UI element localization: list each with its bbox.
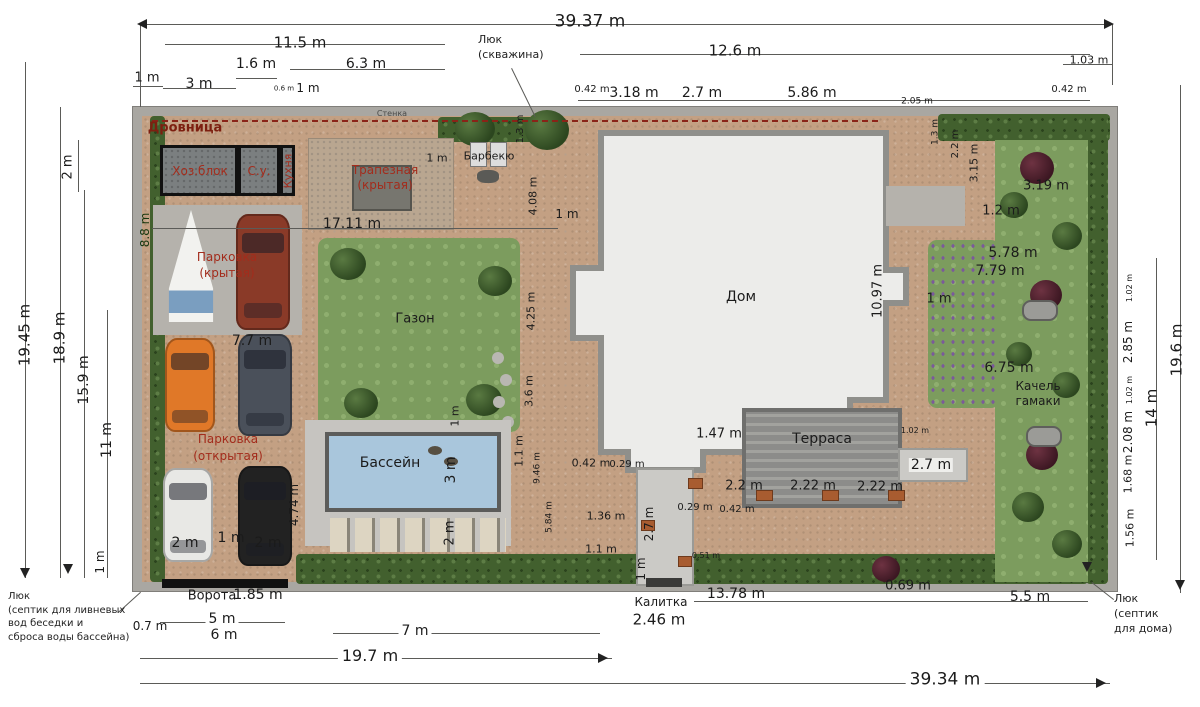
dim-1m-path: 1 m (635, 557, 647, 580)
tree (525, 110, 569, 150)
dim-6-75: 6.75 m (984, 361, 1033, 375)
pool (325, 432, 501, 512)
dim-2-46: 2.46 m (633, 613, 686, 628)
dim-2m-park-b: 2 m (255, 536, 282, 550)
car-gray (238, 334, 292, 436)
hedge-top-right (938, 114, 1110, 141)
note-manhole-well: Люк (скважина) (478, 33, 544, 63)
dim-5m: 5 m (206, 612, 239, 626)
dim-1m-dining: 1 m (426, 153, 447, 164)
dim-2-22-a: 2.22 m (790, 480, 836, 493)
dim-5-86: 5.86 m (787, 86, 836, 100)
path-top-right (886, 186, 965, 226)
area-label-house: Дом (726, 290, 756, 304)
area-label-gate-wicket: Калитка (635, 596, 688, 608)
arrowhead (1104, 19, 1119, 29)
dim-1-36: 1.36 m (587, 511, 626, 522)
dim-4-74: 4.74 m (288, 484, 300, 526)
dim-1m-park: 1 m (218, 531, 245, 545)
dim-12-6: 12.6 m (709, 44, 762, 59)
dim-1-02-a: 1.02 m (1126, 274, 1134, 302)
arrowhead (1096, 678, 1111, 688)
dim-line (140, 24, 141, 107)
bush (1052, 222, 1082, 250)
dim-1-02-b: 1.02 m (1126, 376, 1134, 404)
dim-1-1-path: 1.1 m (585, 544, 617, 555)
dim-7m: 7 m (399, 624, 432, 638)
area-label-covered-parking-2: (крытая) (199, 267, 254, 279)
step (688, 478, 703, 489)
car-orange (165, 338, 215, 432)
dim-0-29-b: 0.29 m (677, 503, 712, 513)
stepping-stone (493, 396, 505, 408)
dim-line (140, 24, 1112, 25)
dim-11-5: 11.5 m (274, 36, 327, 51)
site-plan: Дровница Хоз.блок С.у. Кухня Трапезная (… (0, 0, 1200, 707)
area-label-pool: Бассейн (360, 456, 420, 470)
dim-2-2-tr: 2.2 m (951, 130, 961, 159)
area-label-open-parking-2: (открытая) (193, 450, 263, 462)
dim-1m-right-house: 1 m (926, 293, 951, 306)
area-label-gate-main: Ворота (188, 590, 237, 603)
dim-13-78: 13.78 m (707, 587, 765, 601)
area-label-covered-parking-1: Парковка (197, 251, 257, 263)
dim-1-2: 1.2 m (982, 205, 1019, 218)
dim-9-46: 9.46 m (534, 452, 543, 484)
dim-1-6: 1.6 m (236, 57, 276, 71)
dim-18-9: 18.9 m (53, 312, 68, 365)
dim-2-22-b: 2.22 m (857, 481, 903, 494)
dim-0-51: 0.51 m (692, 552, 720, 560)
dim-line (1112, 24, 1113, 85)
dim-3-18: 3.18 m (609, 86, 658, 100)
dim-1m-pool: 1 m (450, 405, 461, 426)
dim-1-03: 1.03 m (1070, 55, 1109, 66)
dim-17-11: 17.11 m (323, 217, 381, 231)
dim-3m-top: 3 m (186, 77, 213, 91)
dim-6m: 6 m (211, 628, 238, 642)
dim-0-29-a: 0.29 m (609, 460, 644, 470)
gate-kalitka (646, 578, 682, 587)
dim-1m-top-left: 1 m (134, 72, 159, 85)
dim-1m-left-bottom: 1 m (94, 550, 106, 573)
hammock (1022, 300, 1058, 321)
dim-19-7: 19.7 m (338, 648, 402, 664)
dim-line (236, 78, 277, 79)
dim-bottom-total: 39.34 m (906, 672, 985, 689)
dim-3m-pool: 3 m (444, 457, 458, 484)
stepping-stone (500, 374, 512, 386)
dim-2-08: 2.08 m (1122, 411, 1134, 453)
dim-1-3-bbq: 1.3 m (516, 115, 526, 144)
area-label-dining-1: Трапезная (352, 164, 418, 176)
dim-5-84: 5.84 m (546, 501, 555, 533)
area-label-utility: Хоз.блок (172, 165, 227, 177)
dim-top-total: 39.37 m (555, 14, 626, 31)
area-label-woodshed: Дровница (148, 122, 223, 135)
dim-1-85: 1.85 m (233, 588, 282, 602)
step (678, 556, 692, 567)
area-label-bathroom: С.у. (247, 165, 270, 177)
barbecue-kettle (477, 170, 499, 183)
dim-6-3: 6.3 m (346, 57, 386, 71)
area-label-kitchen: Кухня (283, 154, 294, 189)
bush (478, 266, 512, 296)
dim-0-42-a: 0.42 m (572, 458, 611, 469)
bush (1052, 530, 1082, 558)
dim-1-47: 1.47 m (696, 428, 742, 441)
tree (455, 112, 495, 146)
note-manhole-septic-pool: Люк (септик для ливневых вод беседки и с… (8, 590, 129, 644)
dim-3-15: 3.15 m (969, 144, 980, 183)
dim-11m: 11 m (100, 422, 114, 458)
car-black (238, 466, 292, 566)
arrowhead (1082, 562, 1092, 577)
dim-5-5: 5.5 m (1010, 590, 1050, 604)
arrowhead (1175, 580, 1185, 595)
dim-3-19: 3.19 m (1023, 180, 1069, 193)
area-label-terrace: Терраса (792, 432, 852, 446)
label-wall: Стенка (377, 110, 407, 118)
bush (344, 388, 378, 418)
dim-7-7: 7.7 m (232, 334, 272, 348)
arrowhead (598, 653, 613, 663)
dim-1-02-terrace: 1.02 m (901, 427, 929, 435)
dim-8-8: 8.8 m (139, 213, 151, 248)
dim-5-78: 5.78 m (988, 246, 1037, 260)
dim-0-6: 0.6 m (274, 86, 294, 93)
area-label-swing-1: Качель (1015, 380, 1060, 392)
dim-1-68: 1.68 m (1123, 455, 1134, 494)
arrowhead (20, 568, 30, 583)
dim-2m-left: 2 m (62, 154, 75, 179)
note-manhole-septic-house: Люк (септик для дома) (1114, 592, 1172, 637)
dim-4-08: 4.08 m (528, 177, 539, 216)
dim-1-1-pool: 1.1 m (514, 435, 525, 467)
arrowhead (63, 564, 73, 579)
sun-loungers (330, 518, 506, 552)
dim-line (78, 140, 79, 192)
dim-0-42-left: 0.42 m (574, 85, 609, 95)
dim-0-42-b: 0.42 m (719, 505, 754, 515)
area-label-barbecue: Барбекю (464, 151, 515, 162)
area-label-dining-2: (крытая) (357, 179, 412, 191)
bush (330, 248, 366, 280)
area-label-lawn: Газон (395, 313, 434, 326)
dim-3-6: 3.6 m (524, 375, 535, 407)
dim-2-2-terrace: 2.2 m (725, 480, 762, 493)
dim-4-25: 4.25 m (526, 292, 537, 331)
dim-2-7-path: 2.7 m (643, 507, 655, 542)
arrowhead (132, 19, 147, 29)
dim-1m-house-left: 1 m (555, 208, 578, 220)
dim-2-05: 2.05 m (901, 98, 933, 107)
duck (428, 446, 442, 455)
dim-0-7: 0.7 m (133, 620, 168, 632)
dim-1m-top-mid: 1 m (296, 82, 319, 94)
dim-2-7-top: 2.7 m (682, 86, 722, 100)
dim-7-79: 7.79 m (975, 264, 1024, 278)
dim-2m-loungers: 2 m (444, 520, 457, 545)
dim-2m-park-a: 2 m (172, 536, 199, 550)
dim-0-69: 0.69 m (885, 580, 931, 593)
dim-2-7-porch: 2.7 m (909, 458, 953, 472)
dim-19-45: 19.45 m (18, 304, 33, 366)
dim-14m: 14 m (1145, 389, 1160, 427)
dim-1-56: 1.56 m (1125, 509, 1136, 548)
bush (1012, 492, 1044, 522)
dim-19-6: 19.6 m (1170, 324, 1185, 377)
dim-10-97: 10.97 m (872, 264, 885, 318)
dim-line (580, 54, 1090, 55)
dim-1-3-tr: 1.3 m (932, 119, 941, 145)
dim-line (333, 633, 600, 634)
dim-15-9: 15.9 m (77, 355, 91, 404)
area-label-swing-2: гамаки (1015, 395, 1060, 407)
area-label-open-parking-1: Парковка (198, 433, 258, 445)
stepping-stone (492, 352, 504, 364)
hammock (1026, 426, 1062, 447)
dim-0-42-right: 0.42 m (1051, 85, 1086, 95)
dim-line (133, 86, 163, 87)
hedge-right (1086, 114, 1108, 584)
dim-2-85: 2.85 m (1122, 321, 1134, 363)
